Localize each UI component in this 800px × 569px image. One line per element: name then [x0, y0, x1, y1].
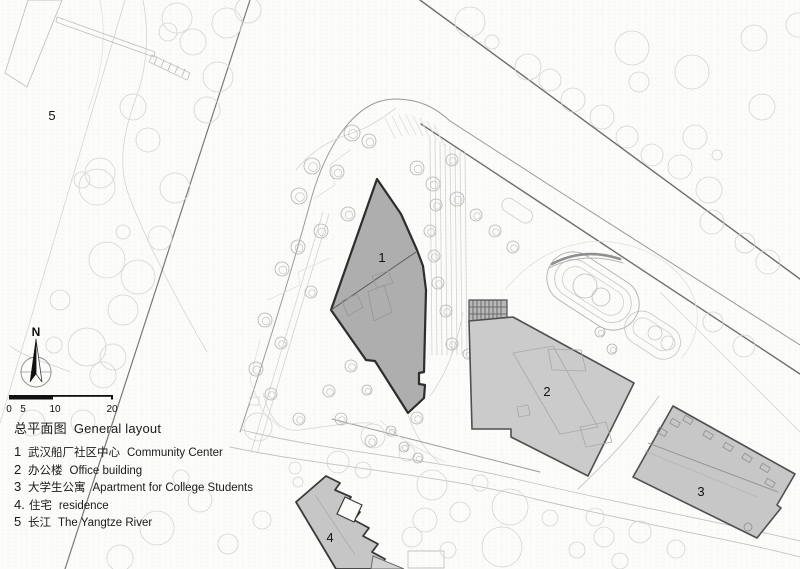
scale-bar: 0 5 10 20	[6, 395, 118, 415]
tree	[361, 424, 385, 448]
tree-canopy-detail	[415, 416, 422, 423]
legend-item-yangtze-river: 5长江The Yangtze River	[14, 514, 253, 532]
tree	[121, 260, 155, 294]
tree	[485, 35, 499, 49]
tree	[492, 489, 528, 525]
legend-item-english: Office building	[70, 465, 143, 477]
office-building	[469, 300, 634, 476]
tree	[212, 8, 242, 38]
tree	[629, 521, 651, 543]
legend-item-english: The Yangtze River	[58, 517, 152, 529]
scale-tick-0: 0	[6, 404, 12, 415]
tree	[667, 540, 685, 558]
tree-canopy-detail	[474, 213, 481, 220]
neighbor-building-sliver	[371, 556, 404, 569]
legend: 总平面图General layout 1武汉船厂社区中心Community Ce…	[14, 418, 253, 532]
tree-canopy-detail	[493, 229, 500, 236]
tree	[712, 150, 722, 160]
tree	[148, 226, 172, 250]
legend-item-number: 5	[14, 514, 24, 531]
tree	[561, 88, 585, 112]
tree-canopy-detail	[365, 388, 371, 394]
stair-line	[465, 152, 467, 355]
tree-canopy-detail	[414, 165, 422, 173]
tree	[50, 290, 70, 310]
tree	[629, 72, 649, 92]
pier	[56, 17, 190, 80]
legend-item-community-center: 1武汉船厂社区中心Community Center	[14, 444, 253, 462]
tree-canopy-detail	[345, 211, 353, 219]
scale-bar-segment-thin	[53, 395, 112, 397]
tree	[786, 13, 800, 37]
stair-line	[430, 138, 432, 355]
tree-canopy-detail	[334, 169, 342, 177]
tree	[46, 337, 62, 353]
stair-line	[440, 142, 442, 355]
north-needle-dark-half	[30, 339, 36, 382]
tree	[289, 462, 301, 474]
tree	[293, 477, 303, 487]
north-label: N	[32, 325, 41, 339]
tree-canopy-detail	[598, 330, 604, 336]
tree	[203, 62, 233, 92]
tree	[749, 94, 775, 120]
building-2-footprint	[469, 317, 634, 476]
scale-bar-end-tick	[111, 395, 113, 400]
tree	[253, 511, 271, 529]
tree-canopy-detail	[279, 341, 286, 348]
tree	[194, 97, 220, 123]
stair-line	[435, 140, 437, 355]
legend-item-chinese: 武汉船厂社区中心	[28, 447, 120, 459]
tree-canopy-detail	[434, 203, 441, 210]
building-4-label: 4	[326, 530, 333, 545]
north-arrow: N	[20, 325, 52, 387]
scale-tick-10: 10	[49, 404, 61, 415]
tree	[569, 542, 585, 558]
tree	[89, 242, 125, 278]
legend-item-residence: 4.住宅residence	[14, 497, 253, 515]
small-structure-2	[408, 551, 444, 568]
apartment-building	[633, 406, 795, 538]
tree	[450, 502, 470, 522]
site-plan-canvas: 1 2 3 4 5 N 0 5 10 20 总平面图General layou	[0, 0, 800, 569]
building-1-label: 1	[378, 250, 385, 265]
tree-canopy-detail	[432, 254, 439, 261]
legend-item-chinese: 办公楼	[28, 465, 63, 477]
street-line-upper	[420, 0, 800, 279]
legend-title-en: General layout	[74, 421, 161, 436]
river-label: 5	[48, 108, 55, 123]
stair-line	[445, 144, 447, 355]
tree-canopy-detail	[610, 347, 616, 353]
building-2-label: 2	[543, 384, 550, 399]
tree	[472, 475, 488, 491]
legend-item-apartment: 3大学生公寓Apartment for College Students	[14, 479, 253, 497]
tree	[235, 0, 261, 23]
building-4-footprint	[296, 476, 385, 569]
tree	[180, 29, 206, 55]
scale-tick-5: 5	[20, 404, 26, 415]
tree	[542, 510, 558, 526]
tree-canopy-detail	[366, 138, 374, 146]
stair-band	[430, 138, 467, 355]
building-3-footprint	[633, 406, 795, 538]
legend-item-chinese: 大学生公寓	[28, 482, 86, 494]
legend-item-number: 3	[14, 479, 24, 496]
tree	[108, 295, 138, 325]
tree	[668, 155, 692, 179]
legend-title-zh: 总平面图	[14, 421, 67, 436]
tree	[116, 225, 130, 239]
tree	[612, 553, 628, 569]
tree	[355, 462, 371, 478]
tree-canopy-detail	[309, 290, 316, 297]
tree	[733, 335, 755, 357]
tree	[586, 508, 604, 526]
tree	[590, 105, 614, 129]
tree	[482, 527, 522, 567]
legend-item-english: Community Center	[127, 447, 223, 459]
tree-canopy-detail	[262, 317, 270, 325]
legend-item-office-building: 2办公楼Office building	[14, 462, 253, 480]
tree	[594, 527, 614, 547]
legend-item-number: 1	[14, 444, 24, 461]
legend-item-english: Apartment for College Students	[93, 482, 253, 494]
tree-canopy-detail	[511, 245, 518, 252]
shore-line-faint	[0, 0, 125, 423]
scale-tick-20: 20	[106, 404, 118, 415]
legend-item-number: 2	[14, 462, 24, 479]
legend-title: 总平面图General layout	[14, 418, 253, 437]
tree	[455, 7, 485, 37]
tree	[440, 542, 456, 558]
tree	[675, 55, 709, 89]
building-3-label: 3	[697, 484, 704, 499]
tree-canopy-detail	[309, 163, 318, 172]
tree	[159, 23, 177, 41]
tree	[683, 125, 707, 149]
tree	[417, 470, 447, 500]
tree	[136, 128, 160, 152]
tree-canopy-detail	[318, 228, 326, 236]
stair-line	[450, 146, 452, 355]
tree-canopy-detail	[295, 244, 303, 252]
legend-item-number: 4.	[14, 497, 25, 514]
tree	[160, 173, 190, 203]
tree	[327, 451, 349, 473]
tree-canopy-detail	[402, 445, 408, 451]
tree-canopy-detail	[297, 417, 304, 424]
quay-outline	[5, 0, 62, 87]
tree	[696, 177, 722, 203]
residence-building	[296, 476, 404, 569]
tree	[74, 172, 90, 188]
tree-canopy-detail	[279, 266, 287, 274]
tree	[616, 126, 638, 148]
tree	[515, 54, 541, 80]
legend-item-english: residence	[59, 500, 109, 512]
north-needle-icon	[36, 339, 42, 382]
stair-line	[455, 148, 457, 355]
tree	[218, 534, 238, 554]
tree	[741, 25, 767, 51]
tree-canopy-detail	[430, 181, 438, 189]
tree-canopy-detail	[339, 417, 346, 424]
tree	[539, 69, 561, 91]
tree	[402, 527, 422, 547]
tree-canopy-detail	[327, 389, 334, 396]
tree	[615, 31, 649, 65]
legend-item-chinese: 长江	[28, 517, 51, 529]
tree	[162, 3, 192, 33]
tree-canopy-detail	[296, 193, 305, 202]
tree	[79, 169, 115, 205]
tree	[641, 144, 663, 166]
tree	[107, 545, 133, 569]
tree-canopy-detail	[369, 439, 376, 446]
tree-canopy-detail	[349, 364, 356, 371]
scale-bar-segment-solid	[9, 395, 53, 400]
legend-item-chinese: 住宅	[29, 500, 52, 512]
